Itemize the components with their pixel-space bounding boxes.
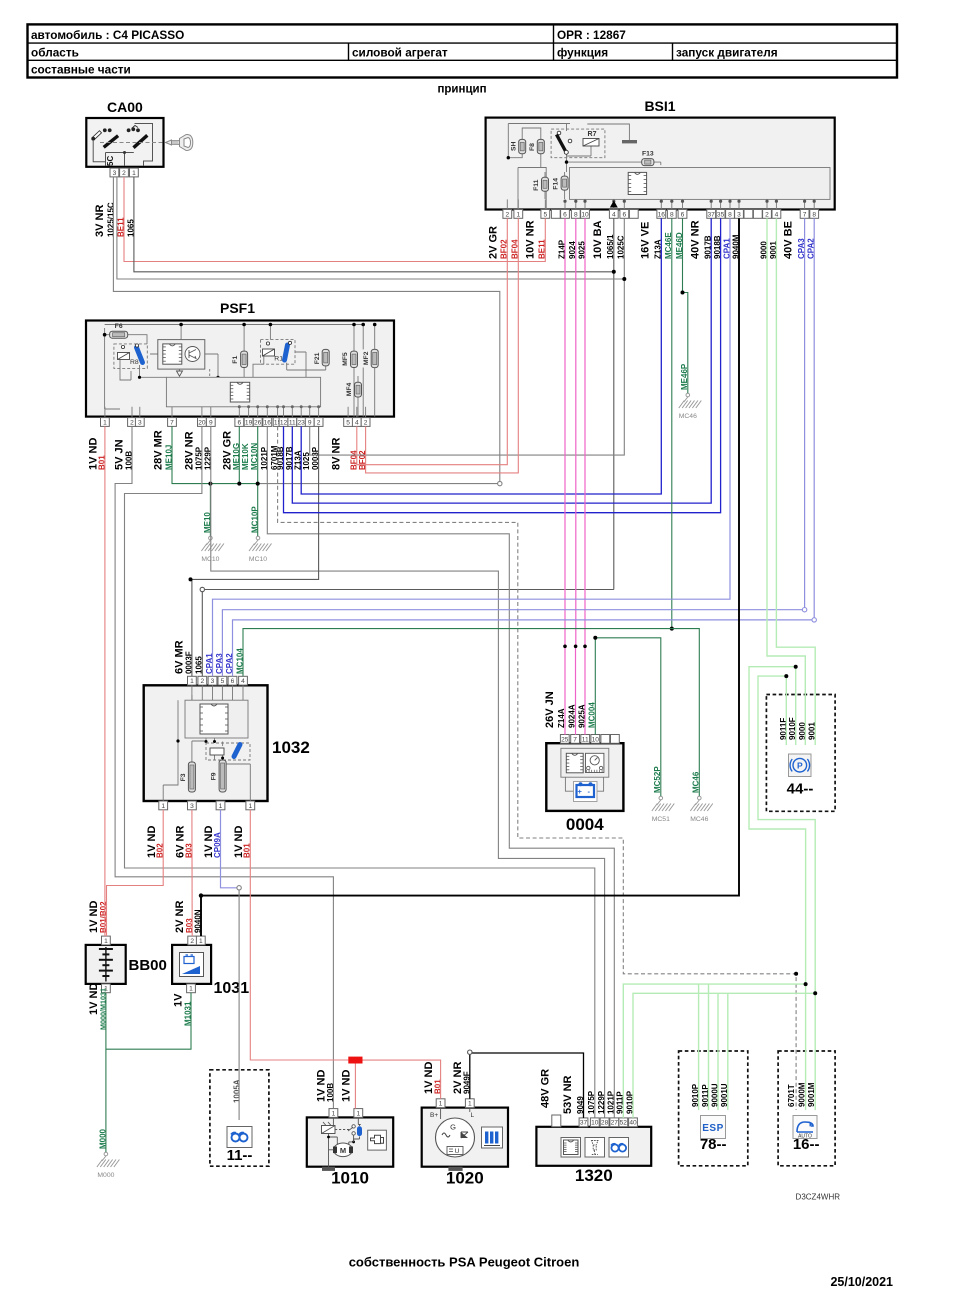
svg-text:3: 3 [211,678,215,685]
svg-text:B+: B+ [430,1112,438,1119]
svg-text:BB00: BB00 [129,957,167,974]
svg-text:4: 4 [612,211,616,218]
svg-text:7: 7 [573,736,577,743]
svg-text:8: 8 [812,211,816,218]
svg-text:собственность PSA Peugeot Citr: собственность PSA Peugeot Citroen [349,1255,580,1270]
svg-text:6: 6 [681,211,685,218]
svg-text:2: 2 [130,419,134,426]
svg-text:P: P [797,760,803,770]
svg-text:10V BA: 10V BA [592,220,604,259]
svg-text:2: 2 [200,678,204,685]
svg-text:R8: R8 [130,359,139,366]
svg-text:78--: 78-- [700,1136,727,1153]
svg-text:PSF1: PSF1 [220,300,255,316]
svg-text:L: L [471,1112,475,1119]
svg-text:40V NR: 40V NR [690,220,702,259]
svg-text:функция: функция [557,45,608,59]
svg-text:5: 5 [221,678,225,685]
svg-text:MF2: MF2 [363,351,370,365]
svg-text:1: 1 [439,1101,443,1108]
svg-text:16: 16 [658,211,666,218]
svg-text:10: 10 [591,1120,599,1127]
svg-text:3: 3 [190,803,194,810]
svg-text:MC46: MC46 [679,413,697,420]
svg-text:ESP: ESP [702,1123,724,1134]
svg-text:37: 37 [580,1120,588,1127]
svg-text:28V MR: 28V MR [153,430,165,470]
svg-text:F6: F6 [115,323,123,330]
svg-text:2V GR: 2V GR [488,226,500,259]
svg-text:2: 2 [364,419,368,426]
svg-text:силовой агрегат: силовой агрегат [352,45,448,59]
svg-text:16V VE: 16V VE [640,222,652,259]
svg-text:F9: F9 [211,772,218,780]
svg-text:+: + [578,787,583,796]
svg-text:27: 27 [611,1120,619,1127]
svg-text:MC51: MC51 [652,816,670,823]
svg-text:53V NR: 53V NR [562,1075,574,1114]
svg-text:19: 19 [245,419,253,426]
svg-text:принцип: принцип [437,84,486,96]
svg-text:1: 1 [219,803,223,810]
svg-text:1320: 1320 [575,1166,613,1185]
svg-text:1: 1 [516,211,520,218]
svg-text:6701T: 6701T [787,1084,796,1107]
svg-text:F13: F13 [642,151,654,158]
svg-text:1020: 1020 [446,1169,484,1188]
svg-text:8: 8 [574,211,578,218]
svg-text:1: 1 [199,938,203,945]
svg-text:35: 35 [717,211,725,218]
svg-text:11: 11 [582,736,589,743]
svg-text:3: 3 [113,170,117,177]
svg-text:MF5: MF5 [342,352,349,366]
svg-text:37: 37 [708,211,716,218]
svg-text:1: 1 [132,170,136,177]
svg-text:F3: F3 [180,773,187,781]
svg-text:6: 6 [231,678,235,685]
svg-text:6: 6 [237,419,241,426]
svg-text:5: 5 [346,419,350,426]
svg-text:1: 1 [190,678,194,685]
svg-text:MC46: MC46 [690,816,708,823]
svg-text:M000: M000 [97,1172,114,1179]
svg-text:3: 3 [138,419,142,426]
svg-text:1010: 1010 [331,1169,369,1188]
svg-text:G: G [450,1123,456,1132]
svg-text:10: 10 [581,211,589,218]
svg-text:40V BE: 40V BE [783,221,795,259]
svg-text:2: 2 [317,419,321,426]
svg-text:F11: F11 [533,179,540,191]
svg-text:6: 6 [622,211,626,218]
svg-text:1: 1 [104,938,108,945]
svg-text:1031: 1031 [214,980,250,997]
svg-text:M: M [340,1146,346,1155]
svg-text:16--: 16-- [793,1136,820,1153]
svg-text:9: 9 [308,419,312,426]
svg-text:1032: 1032 [272,738,310,757]
svg-text:составные части: составные части [31,63,131,77]
svg-text:F8: F8 [529,143,536,151]
svg-text:1: 1 [103,419,107,426]
svg-text:6: 6 [563,211,567,218]
svg-text:25/10/2021: 25/10/2021 [830,1275,893,1289]
svg-text:R1: R1 [274,356,283,363]
svg-text:1V ND: 1V ND [341,1070,353,1102]
svg-text:8: 8 [670,211,674,218]
svg-text:4: 4 [355,419,359,426]
svg-text:10: 10 [592,736,600,743]
svg-text:OPR : 12867: OPR : 12867 [557,28,626,42]
svg-text:F1: F1 [232,356,239,364]
svg-text:1025/15C: 1025/15C [106,202,115,237]
svg-text:11--: 11-- [227,1147,253,1164]
svg-text:4: 4 [241,678,245,685]
svg-text:MC10: MC10 [249,556,267,563]
svg-text:1: 1 [356,1110,360,1117]
svg-text:52: 52 [620,1120,628,1127]
svg-text:F14: F14 [553,178,560,190]
svg-text:23: 23 [298,419,306,426]
svg-text:ME10K: ME10K [241,443,250,470]
svg-text:25: 25 [561,736,569,743]
svg-text:11: 11 [289,419,296,426]
svg-text:26: 26 [254,419,262,426]
svg-text:2: 2 [765,211,769,218]
svg-text:запуск двигателя: запуск двигателя [676,45,778,59]
svg-text:40: 40 [629,1120,637,1127]
svg-text:12: 12 [280,419,288,426]
svg-text:3V NR: 3V NR [94,205,106,237]
svg-text:8: 8 [728,211,732,218]
svg-text:2: 2 [122,170,126,177]
svg-text:область: область [31,45,79,59]
svg-text:1: 1 [161,803,165,810]
svg-text:16: 16 [264,419,272,426]
svg-text:1005A: 1005A [233,1079,242,1103]
svg-text:8V NR: 8V NR [331,438,343,470]
svg-text:SH: SH [510,141,517,151]
svg-text:MF4: MF4 [346,382,353,396]
svg-text:1: 1 [332,1110,336,1117]
svg-text:автомобиль : C4 PICASSO: автомобиль : C4 PICASSO [31,28,184,42]
svg-text:5: 5 [543,211,547,218]
svg-text:2: 2 [190,938,194,945]
svg-text:7: 7 [170,419,174,426]
svg-text:2: 2 [505,211,509,218]
svg-text:48V GR: 48V GR [540,1069,552,1108]
svg-text:7: 7 [803,211,807,218]
svg-text:F21: F21 [314,352,321,364]
svg-text:9: 9 [209,419,213,426]
svg-text:CA00: CA00 [107,99,143,115]
svg-text:20: 20 [198,419,206,426]
svg-text:1: 1 [248,803,252,810]
svg-text:1: 1 [468,1101,472,1108]
svg-text:44--: 44-- [787,781,814,798]
svg-text:D3CZ4WHR: D3CZ4WHR [796,1193,841,1202]
svg-text:R7: R7 [588,131,597,138]
svg-text:U: U [455,1148,460,1155]
svg-text:3: 3 [737,211,741,218]
svg-text:BSI1: BSI1 [644,98,675,114]
svg-text:1: 1 [189,986,193,993]
svg-text:5C: 5C [106,156,115,166]
svg-text:26V JN: 26V JN [544,691,556,728]
svg-text:28: 28 [601,1120,609,1127]
svg-text:0004: 0004 [566,815,604,834]
svg-text:10V NR: 10V NR [525,220,537,259]
svg-text:4: 4 [775,211,779,218]
